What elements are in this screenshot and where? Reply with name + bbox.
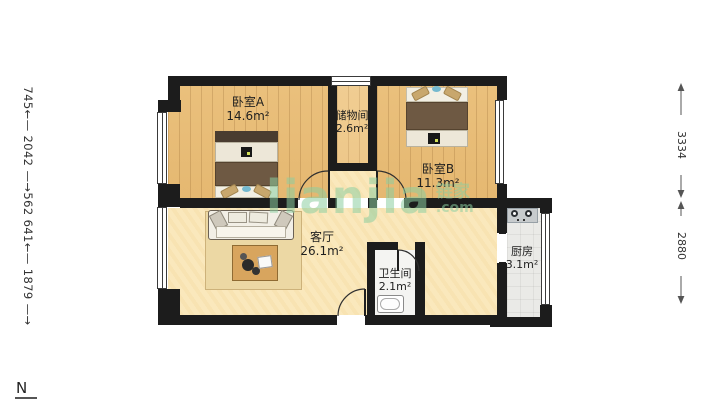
dimension-right-lower: 2880 [674,216,688,276]
room-label-bathroom: 卫生间 2.1m² [379,268,412,293]
room-label-kitchen: 厨房 3.1m² [506,246,539,271]
room-name: 卫生间 [379,268,412,281]
dimension-right-upper: 3334 [674,115,688,175]
room-area: 14.6m² [226,110,269,124]
room-label-living: 客厅 26.1m² [300,231,343,258]
room-label-storage: 储物间 2.6m² [336,110,369,135]
room-area: 2.6m² [336,123,369,136]
room-area: 2.1m² [379,281,412,294]
room-name: 卧室A [226,96,269,110]
door-arcs-and-dimension-lines [0,0,710,400]
room-label-bedroom-a: 卧室A 14.6m² [226,96,269,123]
room-area: 11.3m² [416,177,459,191]
room-label-bedroom-b: 卧室B 11.3m² [416,163,459,190]
room-name: 卧室B [416,163,459,177]
room-name: 厨房 [506,246,539,259]
compass-north-label: N [16,379,27,397]
room-area: 26.1m² [300,245,343,259]
floorplan-canvas: 卧室A 14.6m² 储物间 2.6m² 卧室B 11.3m² 客厅 26.1m… [0,0,710,400]
room-area: 3.1m² [506,259,539,272]
compass-arrow-line [15,397,37,399]
room-name: 储物间 [336,110,369,123]
room-name: 客厅 [300,231,343,245]
dimension-chain-left: 745←— 2042 —→562 641←— 1879 —→ [19,84,35,328]
